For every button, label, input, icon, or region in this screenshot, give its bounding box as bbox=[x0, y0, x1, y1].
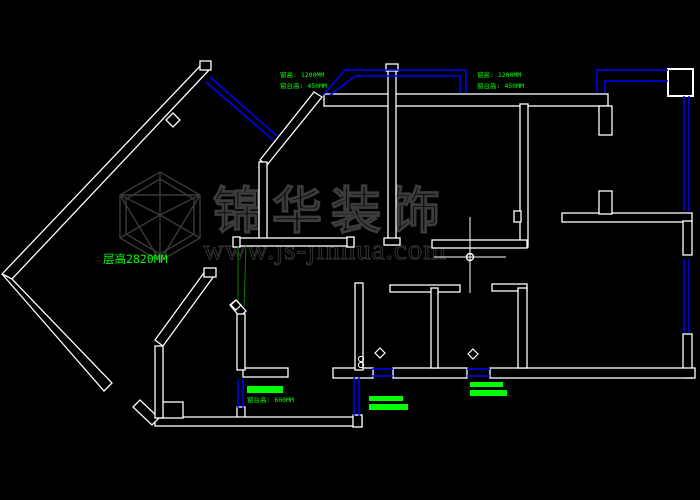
wall-segment bbox=[353, 415, 362, 427]
floorplan-svg: 锦华装饰 www.js-jinhua.com bbox=[0, 0, 700, 500]
ceiling-height-label: 层高2820MM bbox=[103, 252, 168, 266]
wall-segment bbox=[155, 346, 163, 418]
wall-notch bbox=[514, 211, 521, 222]
wall-segment bbox=[388, 69, 396, 245]
hatch-bar bbox=[247, 386, 283, 393]
wall-segment bbox=[599, 106, 612, 135]
wall-segment bbox=[432, 240, 527, 248]
wall-segment bbox=[431, 288, 438, 368]
wall-segment bbox=[393, 368, 467, 378]
wall-segment bbox=[237, 314, 245, 370]
wall-endcap bbox=[384, 238, 400, 245]
window-height-label: 窗高: 1200MM bbox=[477, 70, 521, 79]
wall-segment bbox=[599, 191, 612, 214]
wall-endcap bbox=[233, 237, 240, 247]
window-sill-label: 窗台高: 450MM bbox=[477, 81, 524, 90]
wall-segment bbox=[562, 213, 692, 222]
wall-segment bbox=[155, 417, 362, 426]
wall-segment bbox=[243, 368, 288, 377]
wall-segment bbox=[234, 238, 354, 246]
wall-segment bbox=[333, 368, 373, 378]
hatch-bar bbox=[369, 396, 403, 401]
wall-endcap bbox=[200, 61, 211, 70]
window-height-label: 窗高: 1200MM bbox=[280, 70, 324, 79]
watermark-brand-text: 锦华装饰 bbox=[213, 183, 449, 239]
hatch-bar bbox=[369, 404, 408, 410]
cad-drawing-area[interactable]: 锦华装饰 www.js-jinhua.com bbox=[0, 0, 700, 500]
wall-segment bbox=[683, 221, 692, 255]
wall-segment bbox=[390, 285, 460, 292]
wall-segment bbox=[490, 368, 695, 378]
wall-endcap bbox=[204, 268, 216, 277]
wall-segment bbox=[518, 288, 527, 368]
wall-endcap bbox=[347, 237, 354, 247]
sill-height-label: 窗台高: 600MM bbox=[247, 395, 294, 404]
wall-segment bbox=[259, 162, 267, 242]
hatch-bar bbox=[470, 382, 503, 387]
wall-segment bbox=[520, 104, 528, 247]
wall-segment bbox=[324, 94, 608, 106]
window-sill-label: 窗台高: 450MM bbox=[280, 81, 327, 90]
hatch-bar bbox=[470, 390, 507, 396]
corner-column bbox=[668, 69, 693, 96]
